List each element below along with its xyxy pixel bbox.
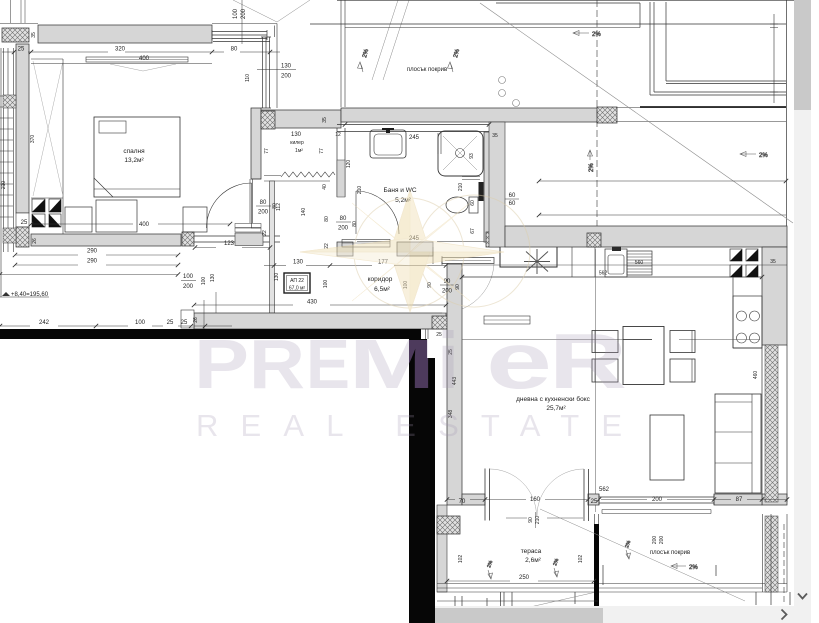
svg-text:200: 200	[652, 497, 663, 503]
svg-text:102: 102	[458, 555, 464, 564]
svg-text:2%: 2%	[589, 163, 595, 172]
svg-text:25: 25	[18, 47, 25, 53]
svg-text:90: 90	[528, 517, 534, 523]
svg-text:12: 12	[335, 132, 341, 138]
svg-text:400: 400	[139, 222, 150, 228]
svg-text:35: 35	[322, 117, 328, 123]
svg-text:плосък покрив: плосък покрив	[407, 67, 447, 73]
svg-text:АП 22: АП 22	[290, 278, 304, 284]
svg-text:22: 22	[262, 230, 268, 236]
svg-text:210: 210	[535, 516, 541, 525]
svg-text:245: 245	[409, 135, 420, 141]
svg-text:100: 100	[183, 274, 194, 280]
svg-text:290: 290	[87, 259, 98, 265]
svg-text:400: 400	[139, 56, 150, 62]
svg-text:460: 460	[753, 371, 759, 380]
svg-text:130: 130	[291, 132, 302, 138]
svg-text:112: 112	[276, 203, 282, 211]
svg-text:i: i	[437, 316, 459, 405]
svg-text:100: 100	[323, 280, 329, 289]
svg-text:130: 130	[210, 274, 216, 283]
svg-text:80: 80	[340, 216, 347, 222]
svg-text:60: 60	[509, 193, 516, 199]
svg-text:430: 430	[307, 300, 318, 306]
svg-text:1м²: 1м²	[295, 148, 303, 154]
svg-text:200: 200	[659, 536, 665, 545]
svg-text:210: 210	[357, 186, 363, 195]
svg-text:13,2м²: 13,2м²	[124, 157, 144, 164]
svg-text:26: 26	[193, 317, 199, 323]
svg-text:e: e	[486, 316, 552, 405]
svg-text:320: 320	[115, 47, 126, 53]
svg-text:120: 120	[346, 160, 352, 169]
svg-text:40: 40	[322, 184, 328, 190]
svg-text:130: 130	[281, 64, 292, 70]
svg-text:100: 100	[233, 8, 239, 19]
svg-text:562: 562	[599, 271, 608, 277]
svg-text:200: 200	[183, 284, 194, 290]
svg-text:плосък покрив: плосък покрив	[650, 550, 690, 556]
svg-text:560: 560	[635, 260, 644, 266]
svg-text:R: R	[549, 317, 627, 405]
svg-text:290: 290	[87, 249, 98, 255]
svg-text:60: 60	[470, 200, 476, 206]
svg-text:2%: 2%	[759, 153, 768, 159]
svg-text:242: 242	[39, 320, 50, 326]
svg-text:25: 25	[591, 499, 598, 505]
svg-text:562: 562	[599, 487, 610, 493]
svg-text:123: 123	[224, 241, 235, 247]
svg-text:87: 87	[736, 497, 743, 503]
svg-text:25: 25	[181, 320, 188, 326]
svg-text:140: 140	[301, 208, 307, 217]
svg-text:102: 102	[578, 555, 584, 564]
svg-text:35: 35	[31, 32, 37, 38]
svg-text:100: 100	[135, 320, 146, 326]
svg-text:60: 60	[509, 201, 516, 207]
svg-text:25: 25	[167, 320, 174, 326]
svg-text:100: 100	[201, 277, 207, 286]
svg-text:160: 160	[530, 497, 541, 503]
svg-text:80: 80	[260, 200, 267, 206]
svg-text:22: 22	[324, 243, 330, 249]
svg-text:110: 110	[245, 74, 251, 82]
svg-text:80: 80	[324, 216, 330, 222]
svg-text:2%: 2%	[689, 565, 698, 571]
svg-text:80: 80	[231, 47, 238, 53]
svg-text:67: 67	[470, 228, 476, 234]
svg-text:2,6м²: 2,6м²	[525, 557, 542, 564]
svg-text:2%: 2%	[592, 32, 601, 38]
svg-text:коридор: коридор	[368, 276, 393, 283]
svg-text:210: 210	[1, 181, 7, 190]
svg-text:200: 200	[442, 289, 453, 295]
svg-text:200: 200	[258, 210, 269, 216]
svg-text:93: 93	[469, 153, 475, 159]
svg-text:200: 200	[652, 536, 658, 545]
svg-text:Баня и WC: Баня и WC	[383, 187, 416, 194]
svg-text:130: 130	[293, 260, 304, 266]
svg-text:67,0 м²: 67,0 м²	[289, 286, 306, 292]
svg-text:спалня: спалня	[123, 148, 145, 155]
svg-text:6,5м²: 6,5м²	[374, 286, 391, 293]
svg-text:90: 90	[455, 284, 461, 290]
svg-text:килер: килер	[290, 140, 304, 146]
svg-text:26: 26	[32, 238, 38, 244]
svg-text:370: 370	[30, 135, 36, 144]
svg-text:130: 130	[274, 273, 280, 282]
svg-text:35: 35	[770, 259, 776, 265]
svg-text:250: 250	[519, 575, 530, 581]
svg-text:200: 200	[338, 226, 349, 232]
svg-text:80: 80	[352, 221, 358, 227]
svg-text:200: 200	[281, 74, 292, 80]
svg-text:210: 210	[458, 183, 464, 192]
svg-text:70: 70	[459, 499, 466, 505]
svg-text:25: 25	[21, 220, 28, 226]
svg-text:тераса: тераса	[521, 548, 542, 555]
svg-text:77: 77	[319, 148, 325, 154]
svg-text:35: 35	[492, 133, 498, 139]
svg-text:77: 77	[264, 148, 270, 154]
svg-text:200: 200	[241, 8, 247, 19]
